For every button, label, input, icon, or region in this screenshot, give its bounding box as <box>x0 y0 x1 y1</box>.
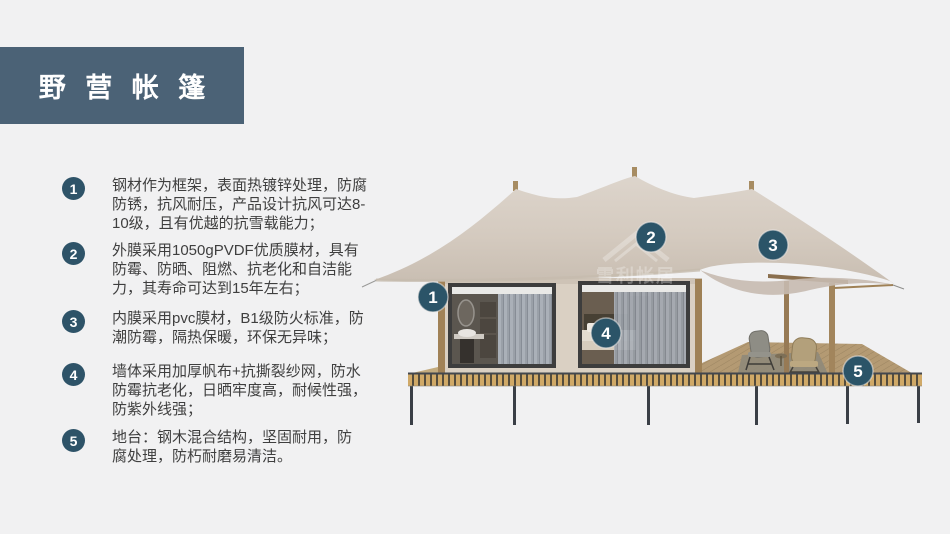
callout-badge-3: 3 <box>758 230 788 260</box>
slide: 野 营 帐 篷 1 钢材作为框架，表面热镀锌处理，防腐 防锈，抗风耐压，产品设计… <box>0 0 950 534</box>
page-title: 野 营 帐 篷 <box>33 66 212 105</box>
window-bathroom <box>448 283 556 368</box>
feature-badge: 4 <box>62 363 85 386</box>
feature-item: 4 墙体采用加厚帆布+抗撕裂纱网，防水 防霉抗老化，日晒牢度高，耐候性强， 防紫… <box>62 362 392 419</box>
svg-text:1: 1 <box>428 288 437 307</box>
corner-post-right <box>695 279 702 378</box>
tent-illustration: 雪利帐居 1 2 3 4 5 <box>352 138 950 438</box>
mirror <box>458 300 474 326</box>
sheer-curtain <box>614 292 686 364</box>
svg-text:4: 4 <box>601 324 611 343</box>
feature-text: 外膜采用1050gPVDF优质膜材，具有 防霉、防晒、阻燃、抗老化和自洁能 力，… <box>112 241 392 298</box>
callout-badge-5: 5 <box>843 356 873 386</box>
svg-text:5: 5 <box>853 362 862 381</box>
feature-item: 2 外膜采用1050gPVDF优质膜材，具有 防霉、防晒、阻燃、抗老化和自洁能 … <box>62 241 392 298</box>
callout-badge-1: 1 <box>418 282 448 312</box>
feature-item: 1 钢材作为框架，表面热镀锌处理，防腐 防锈，抗风耐压，产品设计抗风可达8- 1… <box>62 176 392 233</box>
feature-badge: 2 <box>62 242 85 265</box>
feature-badge: 5 <box>62 429 85 452</box>
feature-text: 墙体采用加厚帆布+抗撕裂纱网，防水 防霉抗老化，日晒牢度高，耐候性强， 防紫外线… <box>112 362 392 419</box>
curtain <box>498 294 552 364</box>
watermark-text: 雪利帐居 <box>596 265 676 286</box>
feature-item: 3 内膜采用pvc膜材，B1级防火标准，防 潮防霉，隔热保暖，环保无异味； <box>62 309 392 347</box>
callout-badge-4: 4 <box>591 318 621 348</box>
feature-text: 钢材作为框架，表面热镀锌处理，防腐 防锈，抗风耐压，产品设计抗风可达8- 10级… <box>112 176 392 233</box>
feature-text: 地台：钢木混合结构，坚固耐用，防 腐处理，防朽耐磨易清洁。 <box>112 428 392 466</box>
deck-legs <box>410 384 920 425</box>
feature-badge: 3 <box>62 310 85 333</box>
feature-item: 5 地台：钢木混合结构，坚固耐用，防 腐处理，防朽耐磨易清洁。 <box>62 428 392 466</box>
feature-text: 内膜采用pvc膜材，B1级防火标准，防 潮防霉，隔热保暖，环保无异味； <box>112 309 392 347</box>
svg-text:3: 3 <box>768 236 777 255</box>
feature-badge: 1 <box>62 177 85 200</box>
svg-text:2: 2 <box>646 228 655 247</box>
title-bar: 野 营 帐 篷 <box>0 47 244 124</box>
sink <box>458 329 476 337</box>
callout-badge-2: 2 <box>636 222 666 252</box>
